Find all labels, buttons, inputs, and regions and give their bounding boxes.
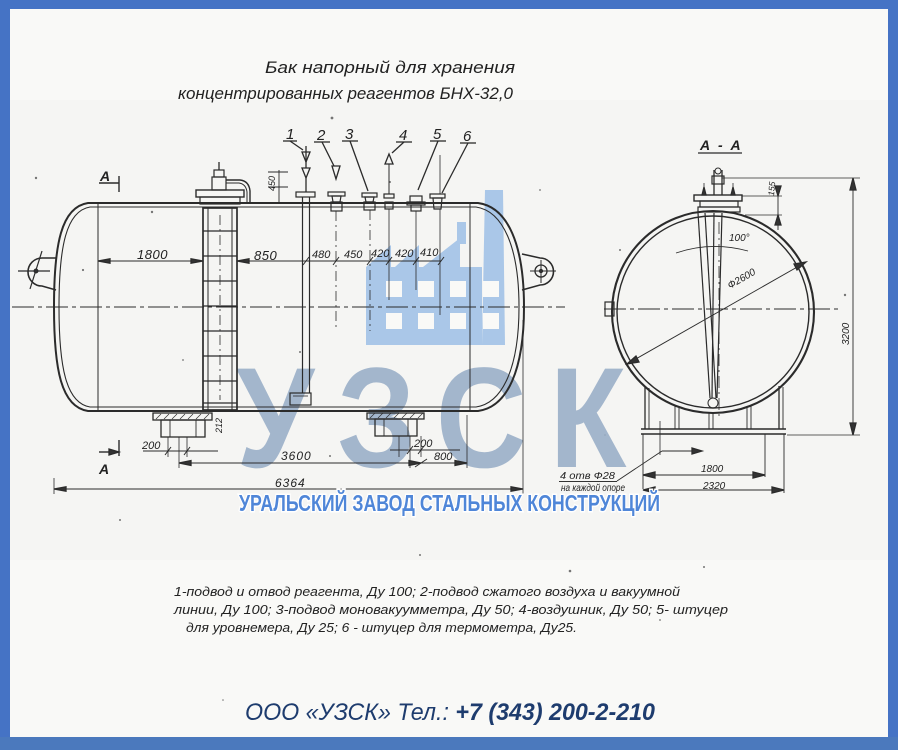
svg-text:линии, Ду 100; 3-подвод монов: линии, Ду 100; 3-подвод моновакуумметра,…: [173, 602, 728, 617]
svg-text:Бак напорный для хранения: Бак напорный для хранения: [265, 58, 515, 77]
svg-text:420: 420: [371, 248, 390, 260]
svg-text:1800: 1800: [701, 464, 724, 475]
svg-text:1-подвод и отвод реагента, Ду: 1-подвод и отвод реагента, Ду 100; 2-под…: [174, 584, 680, 599]
svg-text:3600: 3600: [281, 449, 312, 463]
svg-text:850: 850: [254, 248, 277, 263]
svg-text:200: 200: [413, 438, 433, 450]
svg-text:концентрированных реагентов БН: концентрированных реагентов БНХ-32,0: [178, 84, 514, 103]
svg-text:А: А: [98, 461, 109, 477]
svg-text:155: 155: [766, 181, 777, 196]
svg-text:ООО «УЗСК» Тел.: +7 (343) 200-: ООО «УЗСК» Тел.: +7 (343) 200-2-210: [245, 699, 656, 726]
svg-text:4 отв Ф28: 4 отв Ф28: [560, 471, 615, 482]
svg-text:1800: 1800: [137, 247, 168, 262]
svg-text:для уровнемера, Ду 25; 6 - шту: для уровнемера, Ду 25; 6 - штуцер для те…: [186, 620, 577, 635]
svg-text:212: 212: [214, 418, 224, 434]
svg-text:А: А: [99, 168, 110, 184]
svg-text:А - А: А - А: [699, 137, 743, 153]
svg-text:410: 410: [420, 247, 439, 259]
svg-text:6: 6: [463, 128, 472, 145]
svg-text:800: 800: [434, 451, 453, 463]
svg-text:100°: 100°: [729, 233, 750, 244]
svg-text:2: 2: [316, 127, 326, 144]
svg-text:480: 480: [312, 249, 331, 261]
svg-text:3200: 3200: [841, 322, 852, 345]
svg-text:3: 3: [345, 126, 354, 143]
svg-text:1: 1: [286, 126, 294, 143]
svg-text:200: 200: [141, 440, 161, 452]
svg-text:4: 4: [399, 127, 407, 144]
svg-text:УРАЛЬСКИЙ ЗАВОД СТАЛЬНЫХ КОНСТ: УРАЛЬСКИЙ ЗАВОД СТАЛЬНЫХ КОНСТРУКЦИЙ: [239, 489, 660, 516]
svg-text:6364: 6364: [275, 476, 306, 490]
svg-text:420: 420: [395, 248, 414, 260]
svg-text:450: 450: [344, 249, 363, 261]
svg-text:2320: 2320: [702, 481, 726, 492]
svg-text:5: 5: [433, 126, 442, 143]
svg-text:450: 450: [267, 176, 277, 191]
